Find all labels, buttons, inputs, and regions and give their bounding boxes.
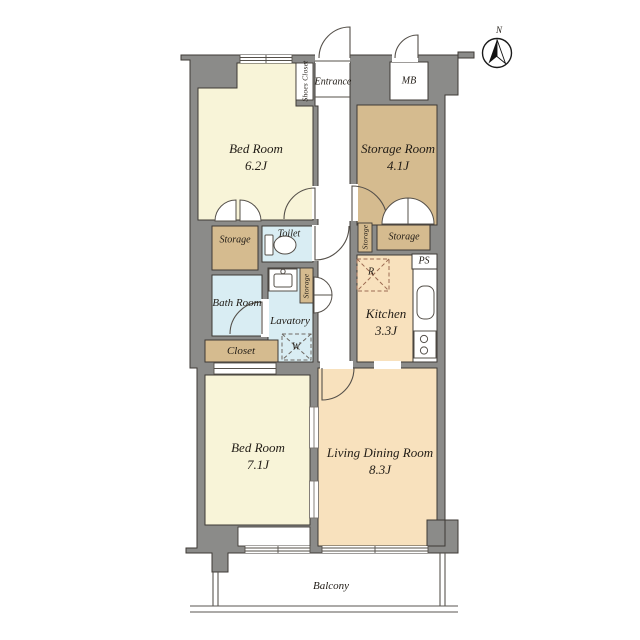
living-window — [322, 546, 428, 553]
pillar-bottom-right — [427, 520, 445, 546]
closet-label: Closet — [227, 345, 255, 357]
closet-sliding-door — [214, 363, 276, 374]
kitchen-storage-label: Storage — [361, 225, 370, 250]
storage-room-door-opening — [349, 184, 358, 221]
storage-closet-right-label: Storage — [388, 232, 419, 243]
bedroom71-living-sliding-door-2 — [310, 481, 319, 518]
pipe-space-label: PS — [418, 256, 429, 267]
lavatory-label: Lavatory — [270, 315, 310, 327]
entrance-hallway-floor — [315, 62, 350, 362]
washer-label: W — [292, 342, 300, 353]
kitchen-size: 3.3J — [375, 323, 397, 339]
bedroom-62-size: 6.2J — [245, 158, 267, 174]
living-door-opening — [320, 361, 353, 369]
bedroom-71-name: Bed Room — [231, 440, 285, 456]
storage-room-name: Storage Room — [361, 141, 435, 157]
entrance-label: Entrance — [315, 77, 352, 88]
living-dining-size: 8.3J — [369, 462, 391, 478]
floor-plan-drawing — [0, 0, 640, 640]
kitchen-sink — [417, 286, 434, 319]
bathroom-label: Bath Room — [212, 297, 261, 309]
balcony-label: Balcony — [313, 580, 349, 592]
kitchen-living-opening — [374, 361, 401, 369]
bedroom-62-window — [240, 55, 292, 63]
kitchen-name: Kitchen — [366, 306, 406, 322]
lavatory-sink — [269, 269, 297, 291]
kitchen-stove — [414, 331, 436, 358]
storage-closet-left-label: Storage — [219, 235, 250, 246]
storage-closet-left — [212, 226, 258, 270]
refrigerator-label: R — [368, 267, 374, 278]
north-label: N — [496, 25, 502, 35]
bedroom-71-window — [245, 546, 310, 553]
bedroom-62-name: Bed Room — [229, 141, 283, 157]
floor-plan: Shoes Closet Entrance MB Bed Room 6.2J S… — [0, 0, 640, 640]
storage-room-size: 4.1J — [387, 158, 409, 174]
bedroom-71-size: 7.1J — [247, 457, 269, 473]
hall-storage-label: Storage — [302, 274, 311, 299]
meter-box-label: MB — [402, 76, 416, 87]
bedroom71-living-sliding-door-1 — [310, 407, 319, 448]
toilet-label: Toilet — [278, 229, 300, 240]
shoes-closet-label: Shoes Closet — [301, 61, 310, 102]
wing-wall-top-right — [458, 52, 474, 58]
bedroom-71-window-alcove — [238, 527, 310, 546]
north-arrow-icon — [483, 39, 512, 68]
living-dining-name: Living Dining Room — [327, 445, 433, 461]
